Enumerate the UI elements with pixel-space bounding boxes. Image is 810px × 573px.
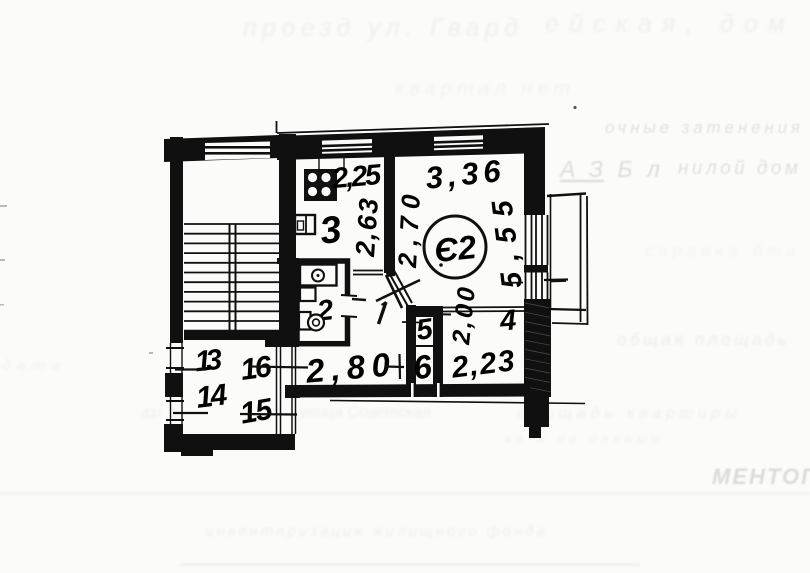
svg-text:15: 15 [238,392,277,430]
svg-text:2,25: 2,25 [330,159,383,195]
svg-text:2,23: 2,23 [449,344,517,385]
svg-text:кв м по данным: кв м по данным [505,431,660,446]
svg-text:улица Советская: улица Советская [298,404,431,421]
svg-text:2,00: 2,00 [447,286,481,347]
svg-text:6: 6 [411,347,435,386]
svg-text:проезд ул. Гвард: проезд ул. Гвард [243,14,518,42]
svg-text:5: 5 [414,313,435,347]
svg-text:3,36: 3,36 [424,153,503,196]
svg-text:2,80: 2,80 [304,346,393,390]
svg-text:2,63: 2,63 [350,197,384,258]
svg-text:3: 3 [317,209,344,254]
svg-text:справка бти: справка бти [645,243,795,260]
svg-text:квартал нет: квартал нет [395,78,570,100]
svg-text:Є2: Є2 [432,228,478,269]
svg-text:гор.: гор. [141,404,163,421]
svg-text:14: 14 [194,378,229,415]
svg-text:МЕНТОП: МЕНТОП [712,464,810,489]
svg-text:инвентаризация жилищного фонда: инвентаризация жилищного фонда [205,523,545,540]
svg-text:4: 4 [498,304,518,337]
svg-text:дата: дата [2,357,60,374]
svg-text:ейская, дом: ейская, дом [545,10,785,38]
svg-text:нилой дом: нилой дом [678,158,798,179]
svg-text:очные затенения: очные затенения [605,118,800,137]
svg-text:АЗБл: АЗБл [558,156,660,182]
svg-text:общая площадь: общая площадь [617,330,787,349]
svg-text:16: 16 [238,350,274,387]
svg-text:площадь квартиры: площадь квартиры [517,405,737,422]
svg-text:5,55: 5,55 [486,198,529,290]
svg-text:2,70: 2,70 [392,193,426,269]
svg-text:13: 13 [194,344,224,379]
